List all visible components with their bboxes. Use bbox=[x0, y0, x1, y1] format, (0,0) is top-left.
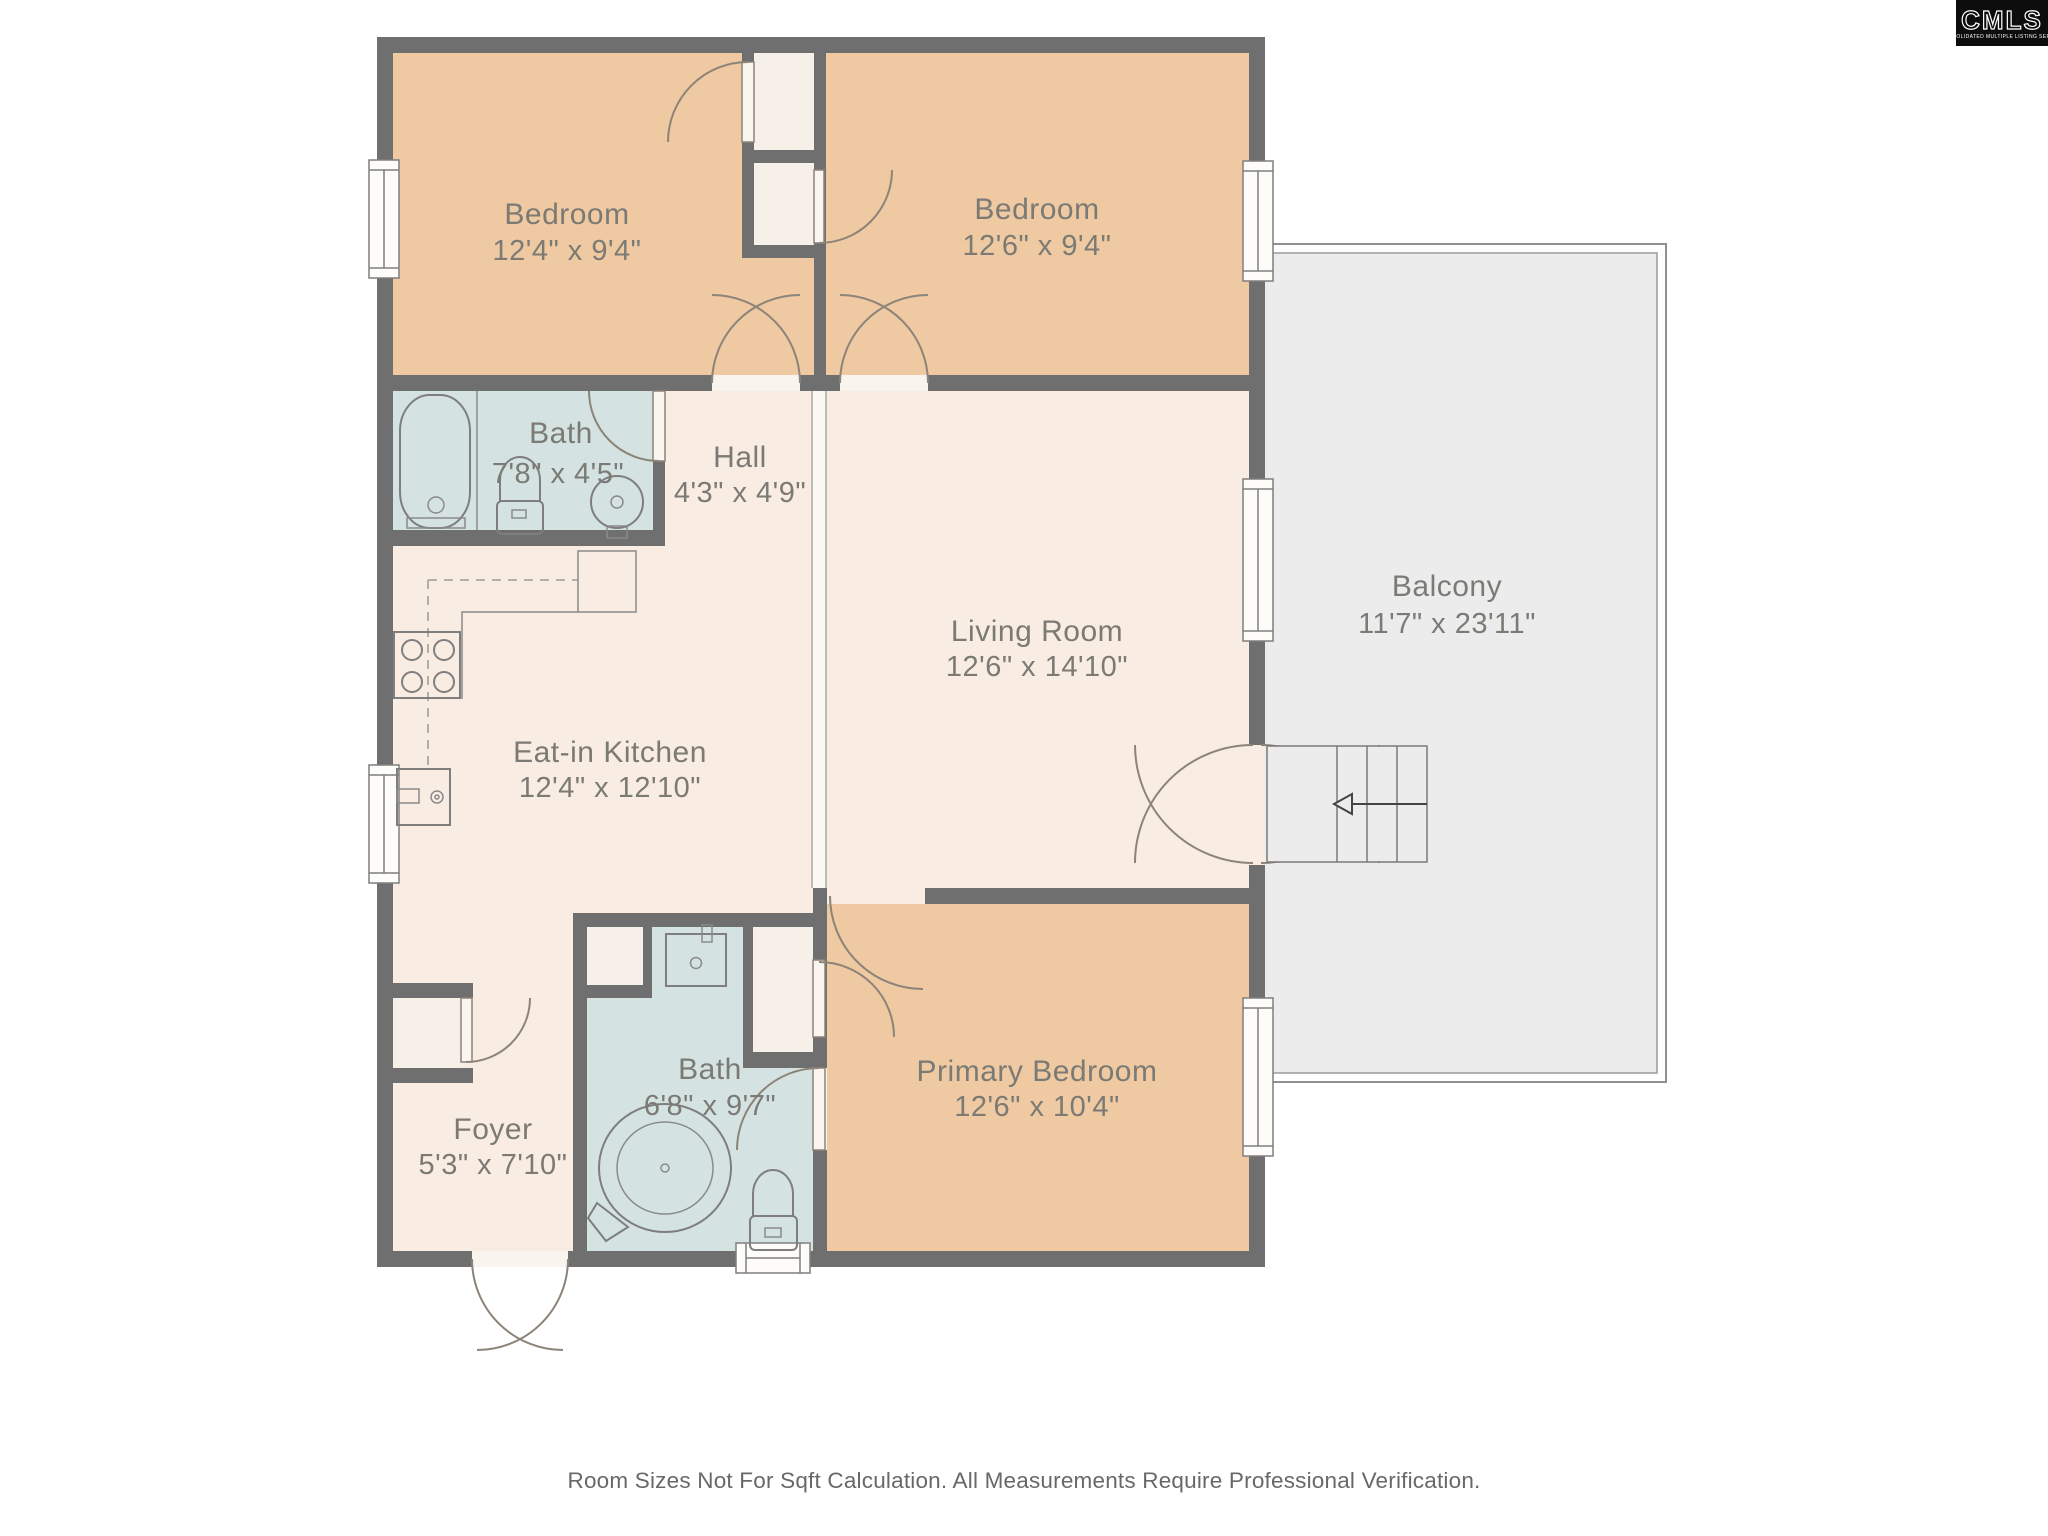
living-room-label: Living Room bbox=[951, 615, 1123, 648]
balcony-door-opening bbox=[1249, 745, 1265, 865]
bath-primary-size: 6'8" x 9'7" bbox=[644, 1090, 776, 1122]
closet-linen bbox=[587, 927, 643, 985]
hall-size: 4'3" x 4'9" bbox=[674, 477, 806, 509]
balcony-floor bbox=[1250, 253, 1657, 1073]
kitchen-size: 12'4" x 12'10" bbox=[519, 772, 701, 804]
closet-foyer bbox=[393, 998, 461, 1068]
bedroom-2-label: Bedroom bbox=[974, 193, 1099, 226]
bedroom-1-size: 12'4" x 9'4" bbox=[493, 235, 642, 267]
window-kitchen bbox=[369, 765, 399, 883]
cmls-logo-title: CMLS bbox=[1961, 7, 2043, 33]
bedroom-2-door-opening bbox=[840, 375, 928, 391]
primary-bedroom-size: 12'6" x 10'4" bbox=[954, 1091, 1120, 1123]
primary-bedroom-label: Primary Bedroom bbox=[917, 1055, 1158, 1088]
balcony-area bbox=[1250, 244, 1666, 1082]
disclaimer-text: Room Sizes Not For Sqft Calculation. All… bbox=[0, 1468, 2048, 1494]
window-bath-primary bbox=[736, 1243, 810, 1273]
window-primary-bedroom bbox=[1243, 998, 1273, 1156]
primary-bedroom-door-opening bbox=[827, 888, 925, 904]
window-bedroom-1 bbox=[369, 160, 399, 278]
living-room-size: 12'6" x 14'10" bbox=[946, 651, 1128, 683]
entry-door bbox=[472, 1259, 568, 1350]
foyer-label: Foyer bbox=[453, 1113, 532, 1146]
cmls-logo-subtitle: CONSOLIDATED MULTIPLE LISTING SERVICE bbox=[1940, 34, 2048, 40]
floor-plan-page: Bedroom 12'4" x 9'4" Bedroom 12'6" x 9'4… bbox=[0, 0, 2048, 1536]
hall-label: Hall bbox=[713, 441, 767, 474]
cmls-logo: CMLS CONSOLIDATED MULTIPLE LISTING SERVI… bbox=[1956, 0, 2048, 46]
bedroom-2-size: 12'6" x 9'4" bbox=[963, 230, 1112, 262]
balcony-size: 11'7" x 23'11" bbox=[1358, 608, 1536, 640]
stairs bbox=[1267, 746, 1427, 862]
bedroom-1-label: Bedroom bbox=[504, 198, 629, 231]
kitchen-living-divider bbox=[812, 391, 826, 888]
closet-primary bbox=[753, 927, 813, 1052]
bath-upper-label: Bath bbox=[529, 417, 593, 450]
kitchen-label: Eat-in Kitchen bbox=[513, 736, 707, 769]
foyer-size: 5'3" x 7'10" bbox=[419, 1149, 568, 1181]
bath-primary-label: Bath bbox=[678, 1053, 742, 1086]
closet-bedroom-1 bbox=[754, 53, 814, 150]
balcony-label: Balcony bbox=[1392, 570, 1502, 603]
entry-door-opening bbox=[472, 1251, 568, 1267]
bath-upper-size: 7'8" x 4'5" bbox=[492, 458, 624, 490]
closet-bedroom-2 bbox=[754, 163, 814, 245]
window-living-room bbox=[1243, 479, 1273, 641]
window-bedroom-2 bbox=[1243, 161, 1273, 281]
floor-plan-drawing: Bedroom 12'4" x 9'4" Bedroom 12'6" x 9'4… bbox=[0, 0, 2048, 1536]
bedroom-1-door-opening bbox=[712, 375, 800, 391]
